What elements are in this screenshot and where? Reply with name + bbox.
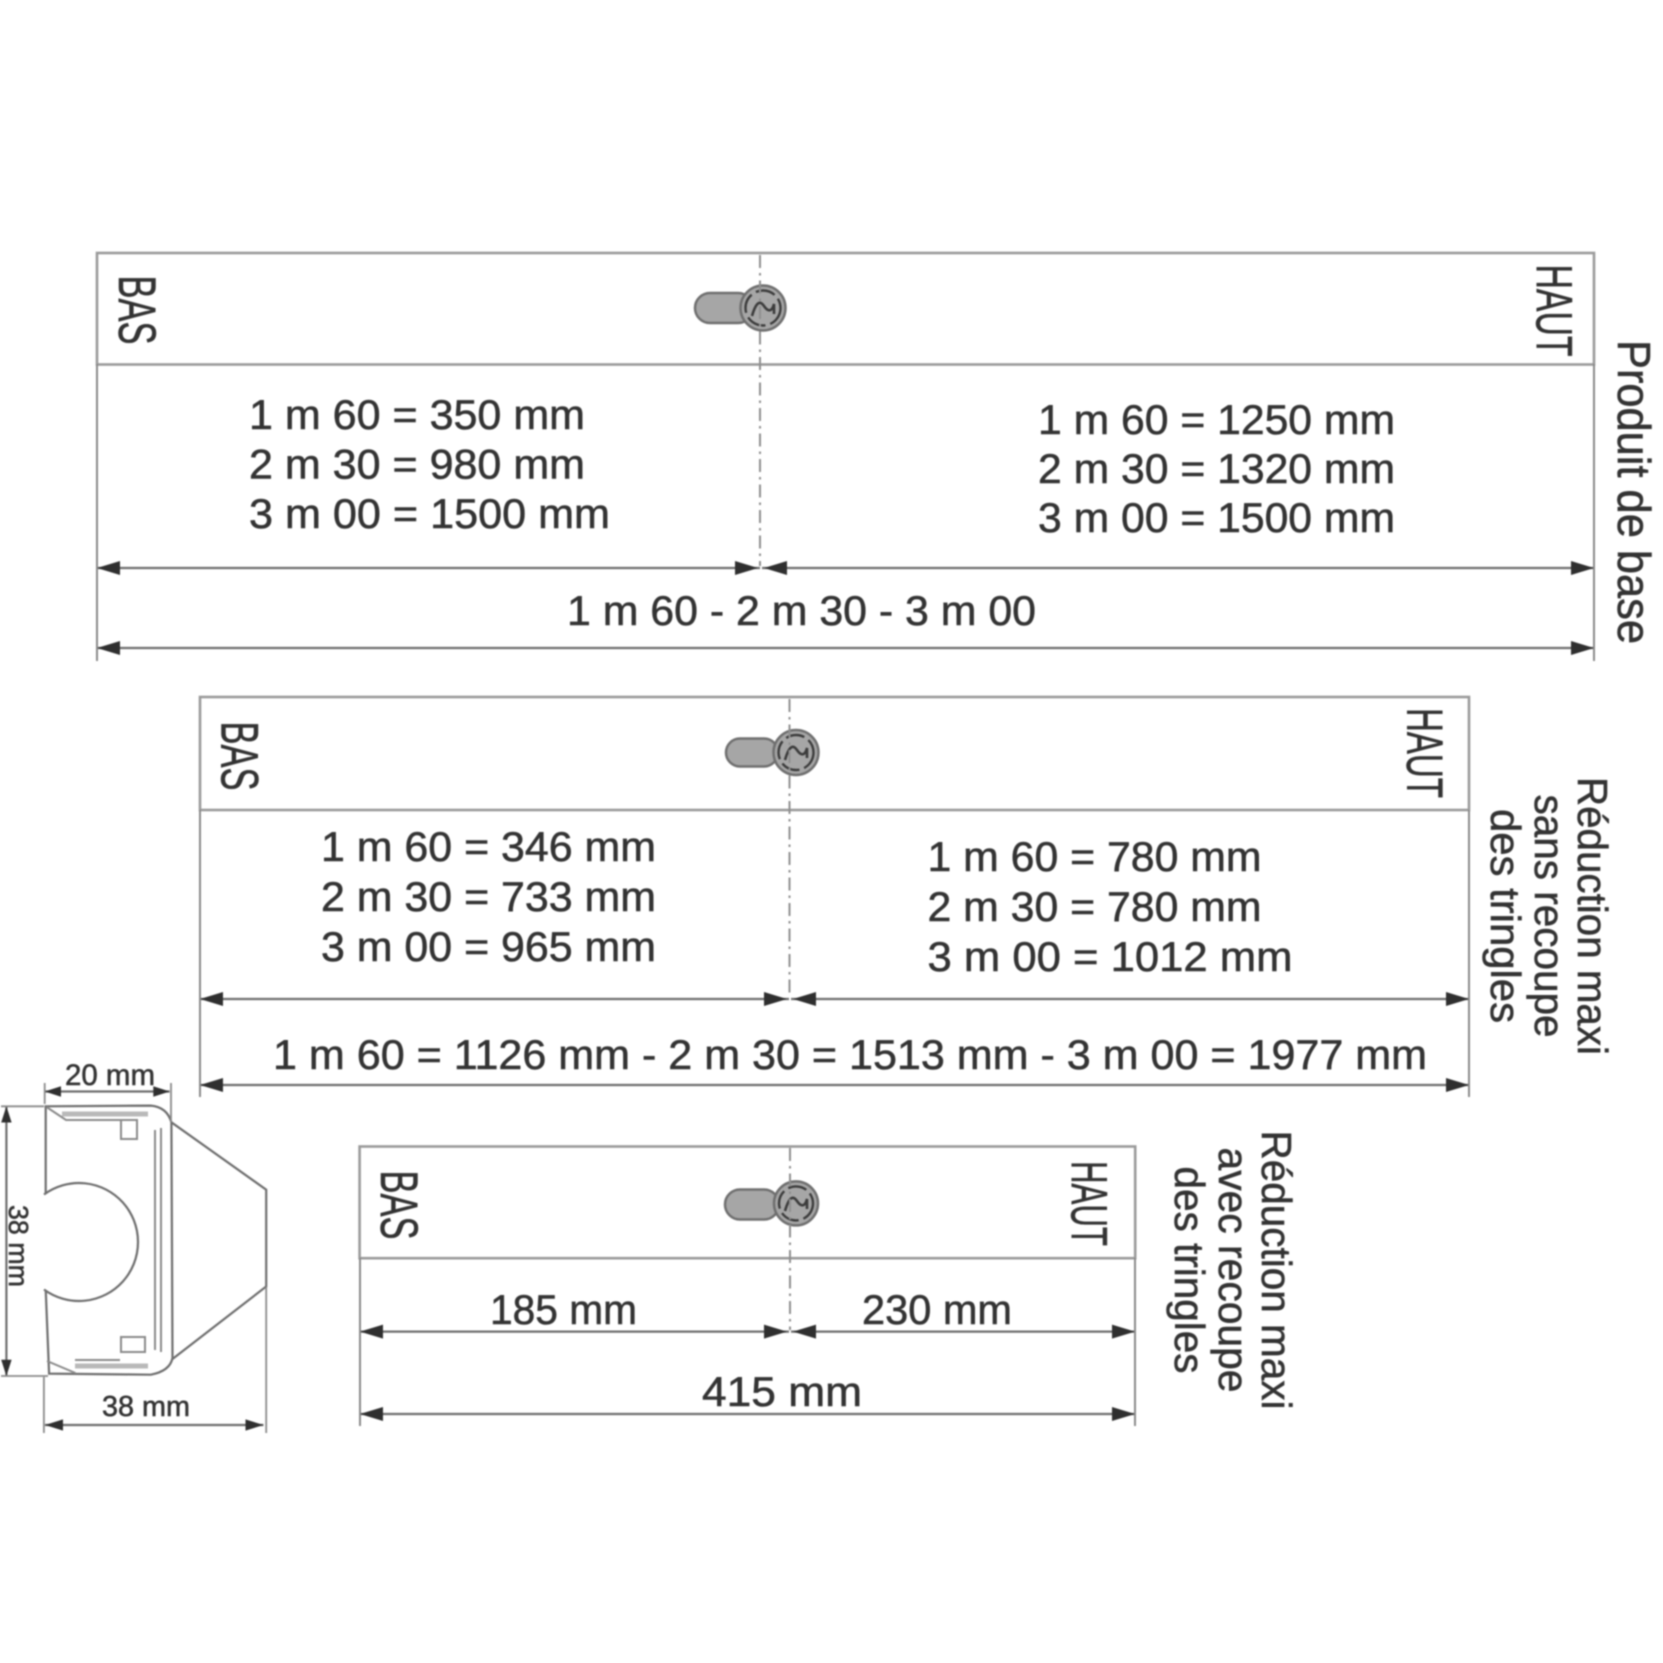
svg-text:Réduction maxi: Réduction maxi: [1253, 1131, 1300, 1410]
svg-text:des tringles: des tringles: [1166, 1167, 1213, 1374]
svg-text:HAUT: HAUT: [1396, 708, 1453, 798]
svg-text:1 m 60 = 780 mm: 1 m 60 = 780 mm: [928, 833, 1262, 880]
svg-text:2 m 30 = 1320 mm: 2 m 30 = 1320 mm: [1038, 445, 1395, 492]
svg-text:2 m 30 = 780 mm: 2 m 30 = 780 mm: [928, 883, 1262, 930]
svg-text:1 m 60 = 1126 mm - 2 m 30 = 15: 1 m 60 = 1126 mm - 2 m 30 = 1513 mm - 3 …: [273, 1031, 1427, 1078]
svg-text:230 mm: 230 mm: [862, 1286, 1012, 1333]
svg-text:BAS: BAS: [210, 722, 269, 791]
svg-text:avec recoupe: avec recoupe: [1210, 1148, 1257, 1393]
svg-text:sans recoupe: sans recoupe: [1526, 795, 1573, 1038]
svg-text:1 m 60 = 1250 mm: 1 m 60 = 1250 mm: [1038, 396, 1395, 443]
svg-text:3 m 00 = 1012 mm: 3 m 00 = 1012 mm: [928, 933, 1293, 980]
svg-text:2 m 30 = 733 mm: 2 m 30 = 733 mm: [321, 873, 656, 920]
svg-text:185 mm: 185 mm: [490, 1286, 637, 1333]
svg-text:3 m 00 = 965 mm: 3 m 00 = 965 mm: [321, 923, 656, 970]
svg-text:415 mm: 415 mm: [702, 1368, 862, 1415]
svg-text:BAS: BAS: [107, 276, 166, 345]
svg-text:1 m 60 = 346 mm: 1 m 60 = 346 mm: [321, 823, 656, 870]
svg-text:1 m 60 = 350 mm: 1 m 60 = 350 mm: [249, 391, 585, 438]
svg-text:38 mm: 38 mm: [102, 1391, 190, 1423]
svg-text:des tringles: des tringles: [1482, 809, 1529, 1023]
svg-text:HAUT: HAUT: [1526, 265, 1583, 357]
svg-text:3 m 00 = 1500 mm: 3 m 00 = 1500 mm: [1038, 494, 1395, 541]
svg-text:BAS: BAS: [369, 1171, 428, 1240]
svg-text:1 m 60 - 2 m 30 - 3 m 00: 1 m 60 - 2 m 30 - 3 m 00: [567, 587, 1036, 634]
svg-text:20 mm: 20 mm: [65, 1059, 155, 1092]
svg-text:Réduction maxi: Réduction maxi: [1569, 777, 1616, 1055]
svg-text:Produit de base: Produit de base: [1608, 340, 1660, 644]
svg-text:3 m 00 = 1500 mm: 3 m 00 = 1500 mm: [249, 490, 610, 537]
svg-text:38 mm: 38 mm: [3, 1205, 34, 1287]
svg-text:2 m 30 = 980 mm: 2 m 30 = 980 mm: [249, 441, 585, 488]
svg-text:HAUT: HAUT: [1061, 1161, 1118, 1246]
